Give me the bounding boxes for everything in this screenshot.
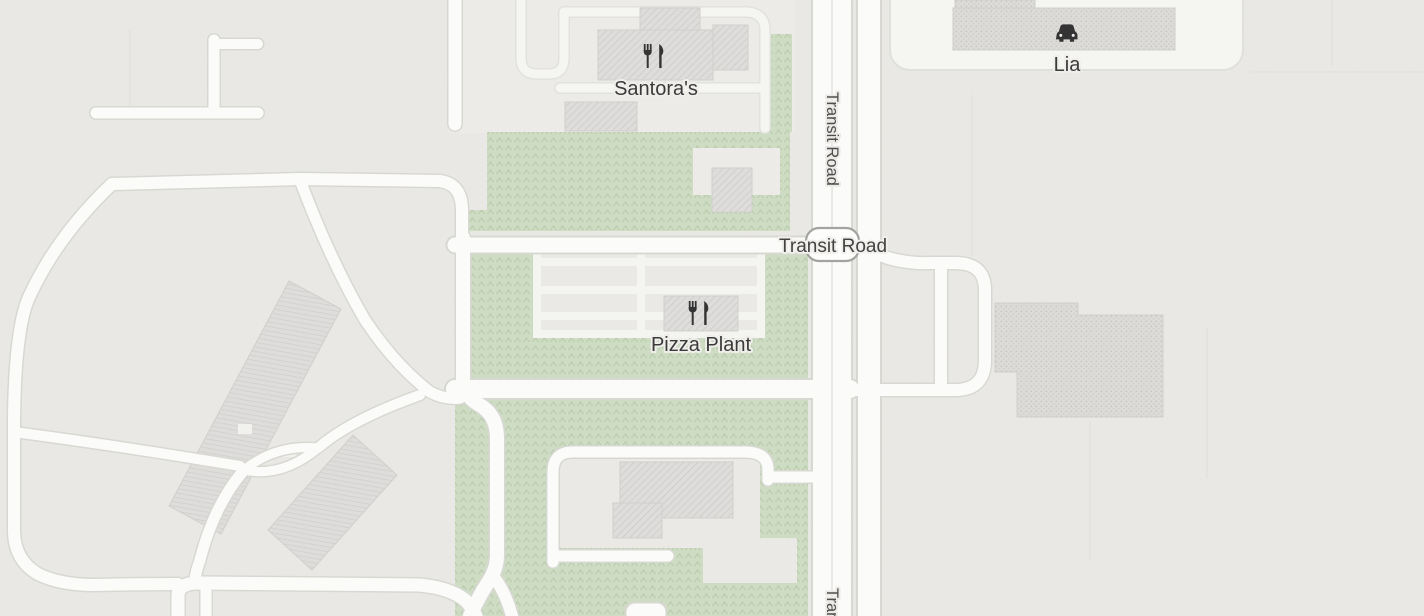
poi-label: Santora's: [614, 78, 698, 100]
road-name-label: Transit Road: [779, 236, 887, 257]
transit-road-bottom-label: Transit Road: [823, 588, 841, 616]
poi-label: Lia: [1054, 54, 1082, 76]
poi-label: Pizza Plant: [651, 334, 751, 356]
map-viewport[interactable]: Transit Road Transit Road Transit Road S…: [0, 0, 1424, 616]
map-canvas[interactable]: Transit Road Transit Road Transit Road S…: [0, 0, 1424, 616]
transit-road-vertical-label: Transit Road: [823, 92, 841, 186]
